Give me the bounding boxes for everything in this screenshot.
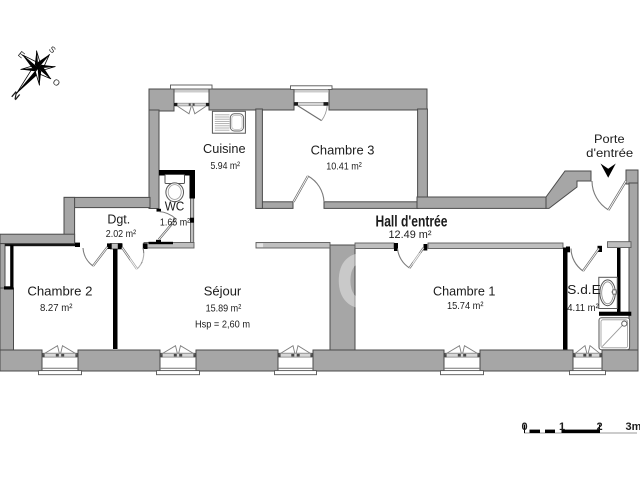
svg-text:8.27 m²: 8.27 m²	[40, 303, 73, 314]
svg-text:5.94 m²: 5.94 m²	[211, 161, 241, 172]
svg-text:4.11 m²: 4.11 m²	[567, 303, 599, 314]
svg-text:0: 0	[521, 421, 527, 433]
svg-text:12.49 m²: 12.49 m²	[389, 229, 432, 241]
svg-text:3m: 3m	[626, 421, 640, 433]
svg-text:1.65 m²: 1.65 m²	[160, 218, 191, 229]
svg-text:Chambre 3: Chambre 3	[311, 142, 375, 157]
svg-text:Hall d'entrée: Hall d'entrée	[376, 214, 448, 231]
svg-text:2: 2	[596, 421, 602, 433]
svg-text:O: O	[51, 77, 63, 89]
svg-text:S: S	[47, 44, 58, 56]
svg-text:1: 1	[559, 421, 565, 433]
svg-text:Porte: Porte	[594, 132, 625, 146]
svg-text:Hsp = 2,60 m: Hsp = 2,60 m	[195, 320, 250, 331]
svg-text:10.41 m²: 10.41 m²	[326, 161, 362, 172]
svg-text:WC: WC	[165, 199, 185, 214]
svg-text:N: N	[9, 90, 22, 103]
svg-text:15.89 m²: 15.89 m²	[206, 303, 242, 314]
svg-text:S.d.E: S.d.E	[567, 282, 601, 297]
svg-text:15.74 m²: 15.74 m²	[447, 301, 484, 312]
svg-text:2.02 m²: 2.02 m²	[106, 229, 137, 240]
svg-text:d'entrée: d'entrée	[586, 146, 633, 160]
svg-text:Chambre 2: Chambre 2	[27, 283, 92, 298]
svg-text:Séjour: Séjour	[204, 284, 242, 299]
svg-text:Dgt.: Dgt.	[107, 212, 130, 227]
svg-text:Chambre 1: Chambre 1	[433, 283, 495, 298]
svg-text:Cuisine: Cuisine	[203, 141, 246, 156]
